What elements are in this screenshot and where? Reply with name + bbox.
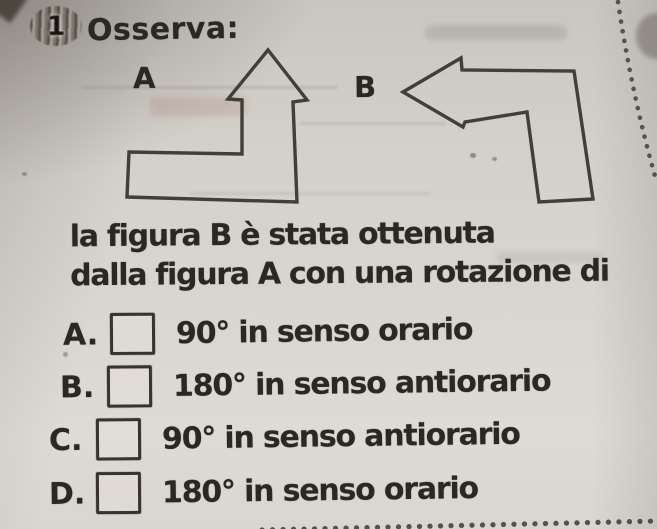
option-row-b: B. 180° in senso antiorario: [60, 359, 551, 410]
answer-checkbox-a[interactable]: [110, 313, 155, 355]
option-row-c: C. 90° in senso antiorario: [49, 412, 520, 463]
option-text: 90° in senso antiorario: [162, 416, 520, 456]
option-row-d: D. 180° in senso orario: [49, 466, 479, 516]
worksheet-photo: 1 Osserva: A B la figura B è stata otten…: [0, 0, 657, 529]
option-letter: D.: [49, 476, 96, 512]
answer-checkbox-b[interactable]: [107, 365, 152, 407]
option-row-a: A. 90° in senso orario: [63, 307, 473, 357]
answer-checkbox-d[interactable]: [96, 472, 141, 514]
option-text: 180° in senso orario: [162, 471, 478, 510]
prompt-line-2: dalla figura A con una rotazione di: [70, 252, 609, 296]
figure-a-shape: [127, 50, 307, 202]
option-text: 180° in senso antiorario: [173, 363, 551, 403]
option-letter: C.: [49, 422, 96, 458]
figure-b-shape: [403, 58, 593, 202]
option-letter: A.: [63, 317, 110, 353]
prompt-paragraph: la figura B è stata ottenuta dalla figur…: [70, 213, 609, 296]
prompt-line-1: la figura B è stata ottenuta: [70, 213, 609, 257]
perforation-dots-bottom: [262, 521, 657, 529]
perforation-dots-vertical: [618, 2, 655, 176]
option-text: 90° in senso orario: [176, 312, 473, 351]
option-letter: B.: [60, 369, 107, 405]
answer-checkbox-c[interactable]: [96, 418, 141, 460]
